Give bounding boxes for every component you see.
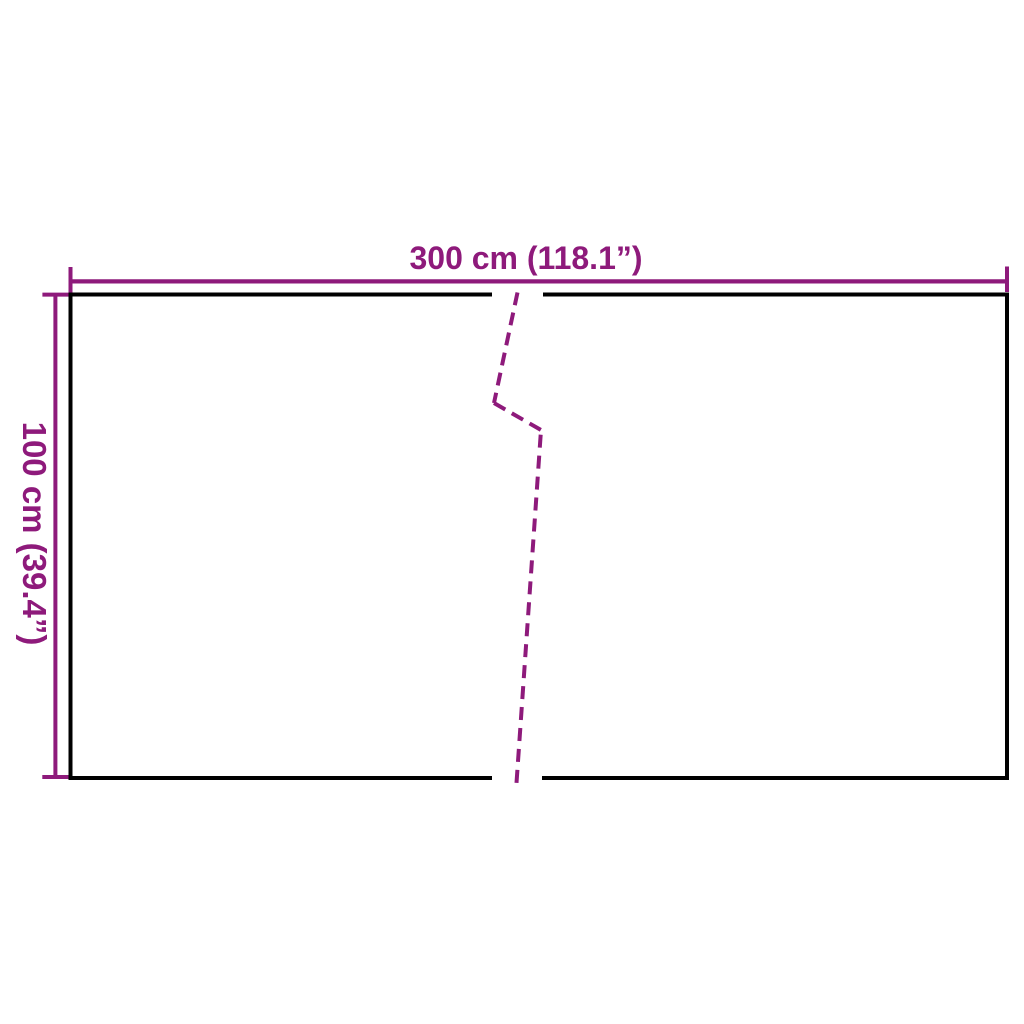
svg-text:100 cm (39.4”): 100 cm (39.4”) <box>16 422 53 646</box>
svg-text:300 cm (118.1”): 300 cm (118.1”) <box>409 240 642 276</box>
